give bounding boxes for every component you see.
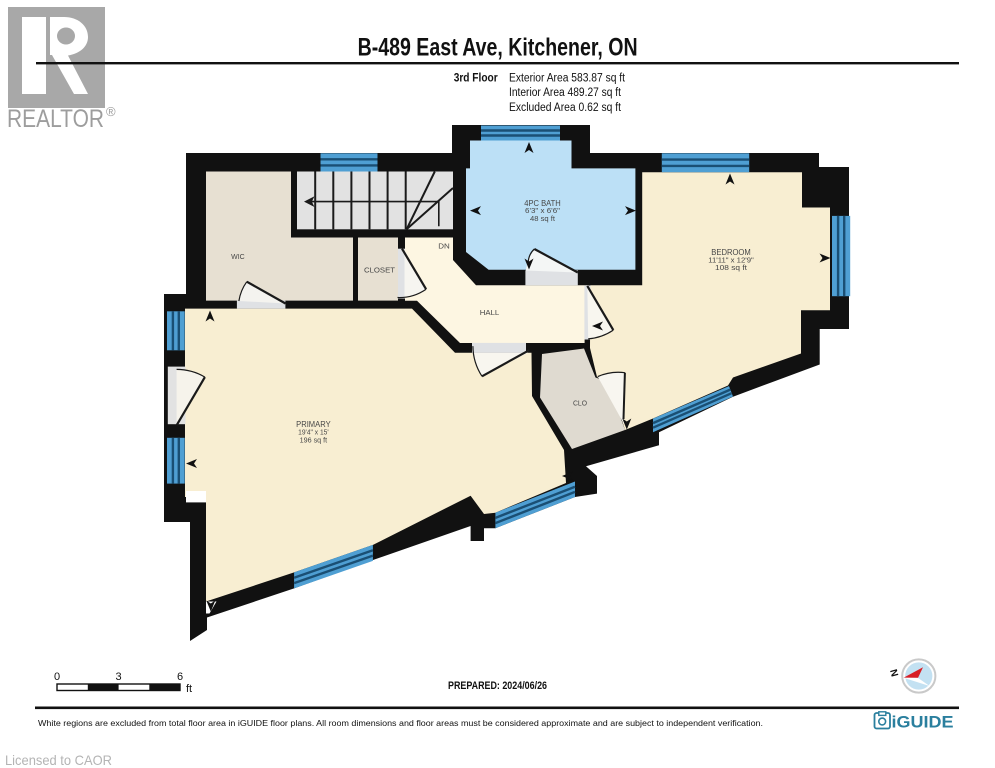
svg-text:DN: DN <box>438 242 450 251</box>
svg-text:REALTOR: REALTOR <box>7 105 104 133</box>
svg-text:6'3" x 6'6": 6'3" x 6'6" <box>525 208 561 215</box>
svg-text:PRIMARY: PRIMARY <box>296 420 331 429</box>
svg-text:3: 3 <box>115 671 121 683</box>
svg-text:White regions are excluded fro: White regions are excluded from total fl… <box>38 718 763 728</box>
svg-text:Excluded Area 0.62 sq ft: Excluded Area 0.62 sq ft <box>509 102 622 114</box>
svg-text:WIC: WIC <box>231 252 245 261</box>
svg-text:19'4" x 15': 19'4" x 15' <box>298 430 329 437</box>
svg-text:®: ® <box>106 104 116 119</box>
svg-text:3rd Floor: 3rd Floor <box>454 73 498 85</box>
svg-text:B-489 East Ave, Kitchener, ON: B-489 East Ave, Kitchener, ON <box>358 34 638 62</box>
svg-text:4PC BATH: 4PC BATH <box>524 199 561 208</box>
svg-text:11'11" x 12'9": 11'11" x 12'9" <box>708 258 754 265</box>
svg-text:6: 6 <box>177 671 183 683</box>
svg-text:CLO: CLO <box>573 399 587 408</box>
svg-text:CLOSET: CLOSET <box>364 266 395 275</box>
svg-text:ft: ft <box>186 683 192 695</box>
svg-text:BEDROOM: BEDROOM <box>711 248 751 257</box>
svg-text:PREPARED: 2024/06/26: PREPARED: 2024/06/26 <box>448 680 547 692</box>
svg-text:0: 0 <box>54 671 60 683</box>
svg-text:Exterior Area 583.87 sq ft: Exterior Area 583.87 sq ft <box>509 73 626 85</box>
svg-text:Licensed to CAOR: Licensed to CAOR <box>5 752 112 768</box>
svg-text:HALL: HALL <box>480 308 500 317</box>
svg-text:Interior Area 489.27 sq ft: Interior Area 489.27 sq ft <box>509 87 622 99</box>
svg-text:196 sq ft: 196 sq ft <box>300 438 328 445</box>
svg-text:48 sq ft: 48 sq ft <box>530 216 555 223</box>
svg-text:iGUIDE: iGUIDE <box>892 714 954 732</box>
svg-text:108 sq ft: 108 sq ft <box>715 265 747 272</box>
